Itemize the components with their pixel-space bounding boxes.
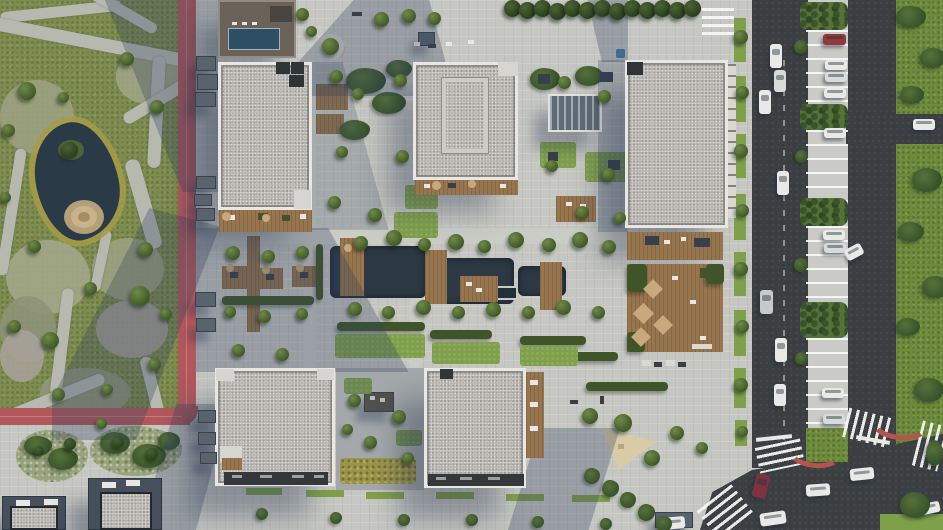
rooftop-pool — [228, 28, 280, 50]
tree — [330, 70, 343, 83]
tree — [737, 426, 748, 437]
meadow-patch — [0, 330, 44, 382]
tree — [374, 12, 389, 27]
water-pier — [425, 250, 447, 304]
planter — [538, 74, 550, 84]
roof-gravel-inset — [10, 506, 58, 530]
tree — [364, 436, 377, 449]
pier-bench — [466, 282, 472, 286]
tree — [602, 168, 615, 181]
car-parked — [823, 230, 845, 240]
facade-band — [428, 474, 524, 486]
tree — [34, 446, 44, 456]
tree — [466, 514, 478, 526]
grass-verge — [366, 492, 404, 499]
grass-verge — [734, 310, 746, 356]
pool-lounger — [242, 22, 247, 25]
roof-gravel-inset — [100, 492, 152, 530]
facade-window — [460, 477, 472, 480]
tree — [382, 306, 395, 319]
deck-table — [300, 214, 306, 219]
tree — [558, 76, 571, 89]
tree — [402, 452, 414, 464]
tree — [734, 30, 748, 44]
deck-table — [530, 426, 538, 431]
tree — [258, 310, 271, 323]
car-parked — [823, 414, 845, 424]
grass-verge — [246, 488, 282, 495]
tree — [58, 92, 69, 103]
tree — [102, 384, 113, 395]
deck-table — [530, 402, 538, 407]
facade-window — [260, 475, 272, 478]
terrace-planter — [448, 183, 456, 188]
car-grey — [760, 290, 773, 314]
tree — [296, 246, 309, 259]
tree — [52, 388, 65, 401]
gym-equipment — [666, 360, 675, 366]
street-vertical-east — [848, 0, 896, 464]
parking-shrubs — [800, 2, 848, 30]
lawn-shrub — [922, 276, 943, 298]
tree — [644, 450, 660, 466]
tree — [614, 212, 626, 224]
rooftop-unit — [44, 499, 58, 505]
tree — [352, 88, 364, 100]
car-white — [774, 70, 786, 92]
deck-table — [700, 336, 706, 340]
tree — [120, 52, 134, 66]
pergola — [200, 452, 217, 464]
grass-verge — [306, 490, 344, 497]
roof-structure — [270, 6, 292, 22]
terrace-planter — [282, 215, 290, 221]
pergola — [194, 194, 212, 206]
round-patio — [78, 212, 90, 222]
lawn-square — [520, 346, 578, 366]
lawn-square — [432, 342, 500, 364]
car-parked — [825, 72, 847, 82]
tree — [306, 26, 317, 37]
car-parked — [822, 388, 844, 398]
tree — [684, 0, 701, 17]
tree — [146, 448, 158, 460]
tree — [602, 480, 619, 497]
roof-step — [216, 369, 234, 381]
facade-band — [224, 472, 328, 485]
parking-shrubs — [800, 198, 848, 226]
tree — [112, 436, 124, 448]
tree — [522, 306, 535, 319]
tree — [330, 512, 342, 524]
umbrella — [344, 244, 352, 252]
tree — [620, 492, 636, 508]
tree — [64, 438, 76, 450]
car-parked — [824, 128, 846, 138]
car-parked — [825, 60, 847, 70]
grass-verge — [436, 492, 474, 499]
car-white — [913, 119, 935, 130]
cast-shadow — [598, 60, 628, 232]
tree — [598, 90, 611, 103]
pergola — [197, 74, 218, 90]
tree — [576, 206, 589, 219]
pergola — [198, 432, 216, 445]
deck-table — [681, 237, 686, 241]
tree — [542, 238, 556, 252]
tree — [354, 236, 368, 250]
plaza-table — [446, 42, 452, 46]
pergola — [196, 208, 215, 221]
roof-skylight — [289, 75, 304, 87]
tree — [508, 232, 524, 248]
tree — [656, 516, 672, 530]
tree — [478, 240, 491, 253]
tree — [614, 414, 632, 432]
roof-step — [294, 190, 311, 209]
balcony-strip — [728, 64, 736, 218]
tree — [736, 86, 749, 99]
terrace-deck — [222, 458, 242, 470]
umbrella — [468, 180, 476, 188]
roof-inset-border — [442, 78, 488, 153]
tree — [428, 12, 441, 25]
tree — [368, 208, 382, 222]
plaza-table — [468, 40, 474, 44]
roof-step — [317, 369, 334, 380]
tree — [296, 308, 308, 320]
tree — [84, 282, 97, 295]
tree — [348, 394, 361, 407]
parking-stripes — [806, 130, 848, 202]
gym-equipment — [654, 362, 662, 367]
tree — [602, 240, 616, 254]
tree — [342, 424, 353, 435]
pool-lounger — [252, 22, 257, 25]
tree — [600, 518, 612, 530]
parking-shrubs — [800, 104, 848, 130]
tree — [582, 408, 598, 424]
play-equipment — [618, 444, 624, 449]
terrace-planter — [694, 238, 710, 247]
tree — [256, 508, 268, 520]
rooftop-unit — [126, 480, 140, 486]
parking-shrubs — [800, 302, 848, 338]
deck-table — [664, 240, 670, 244]
car-white — [770, 44, 782, 68]
tree — [396, 150, 409, 163]
facade-window — [232, 475, 242, 478]
tree — [696, 442, 708, 454]
lawn-shrub — [914, 378, 943, 402]
roof-step — [498, 62, 518, 76]
tree — [150, 100, 164, 114]
glass-pavilion — [548, 94, 602, 132]
tree — [734, 262, 748, 276]
car-white — [777, 171, 789, 195]
tree — [28, 240, 41, 253]
facade-window — [436, 477, 446, 480]
tree — [394, 74, 407, 87]
tree — [638, 504, 655, 521]
terrace-planter — [645, 236, 659, 245]
bench — [570, 400, 578, 404]
deck-table — [690, 300, 696, 304]
roof-skylight — [627, 62, 643, 75]
tree — [322, 38, 339, 55]
tree — [546, 160, 558, 172]
tree — [226, 246, 240, 260]
tree — [42, 332, 59, 349]
tree — [296, 8, 309, 21]
car-white — [774, 384, 786, 406]
tree — [328, 196, 341, 209]
pier-bench — [476, 288, 482, 292]
facade-window — [292, 475, 304, 478]
tree — [416, 300, 431, 315]
deck-table — [530, 380, 538, 385]
tree — [232, 344, 245, 357]
tree — [0, 192, 11, 203]
roof-skylight — [291, 62, 304, 74]
car-white — [806, 483, 831, 497]
hedge-row — [430, 330, 492, 339]
hedge-row — [520, 336, 586, 345]
tree — [348, 302, 362, 316]
tree — [448, 234, 464, 250]
tree — [402, 9, 416, 23]
tree — [734, 378, 748, 392]
roof-skylight — [276, 62, 290, 74]
tree — [736, 320, 749, 333]
tree — [572, 232, 588, 248]
tree — [336, 146, 348, 158]
aerial-site-plan — [0, 0, 943, 530]
car-red-parked — [823, 34, 846, 45]
pergola — [198, 410, 216, 423]
tree — [262, 250, 275, 263]
car-white — [759, 90, 771, 114]
crosswalk — [702, 8, 734, 38]
pond-island-tree — [62, 142, 78, 158]
bench — [600, 396, 604, 404]
pergola — [196, 176, 216, 189]
tree — [96, 418, 107, 429]
umbrella — [432, 181, 441, 190]
car-parked — [824, 243, 846, 253]
tree — [276, 348, 289, 361]
tree — [736, 204, 749, 217]
pergola — [195, 292, 216, 307]
tree — [392, 410, 406, 424]
roof-skylight — [440, 369, 453, 379]
lounger-row — [692, 344, 712, 349]
rooftop-unit — [16, 500, 30, 506]
car-parked — [824, 88, 846, 98]
pergola — [196, 318, 216, 332]
car-white — [849, 467, 874, 481]
building-northeast — [625, 60, 728, 228]
car-white — [775, 338, 787, 362]
deck-table — [500, 184, 506, 188]
deck-table — [672, 276, 678, 280]
terrace-planter — [700, 268, 712, 278]
tree — [670, 426, 684, 440]
tree — [224, 306, 236, 318]
tree — [734, 144, 748, 158]
tree — [486, 302, 501, 317]
deck-table — [566, 202, 572, 206]
rooftop-unit — [102, 482, 116, 488]
facade-window — [488, 477, 500, 480]
tree — [2, 124, 15, 137]
tree — [18, 82, 36, 100]
pool-lounger — [232, 22, 237, 25]
building-south-center — [424, 368, 526, 488]
tree — [138, 242, 153, 257]
tree — [398, 514, 410, 526]
tree — [8, 320, 21, 333]
facade-window — [314, 475, 324, 478]
tree — [148, 358, 161, 371]
tree — [418, 238, 431, 251]
pergola — [195, 92, 216, 107]
tree — [452, 306, 465, 319]
tree — [130, 286, 150, 306]
deck-table — [424, 184, 430, 188]
gym-equipment — [642, 360, 651, 366]
pergola — [196, 56, 216, 71]
lane-dashes — [783, 60, 785, 440]
tree — [592, 306, 605, 319]
tree — [386, 230, 402, 246]
tree — [160, 308, 172, 320]
lawn-shrub — [920, 48, 943, 68]
tree — [556, 300, 571, 315]
gym-equipment — [678, 362, 686, 367]
hedge-row — [586, 382, 668, 391]
umbrella — [222, 212, 231, 221]
umbrella — [262, 214, 270, 222]
